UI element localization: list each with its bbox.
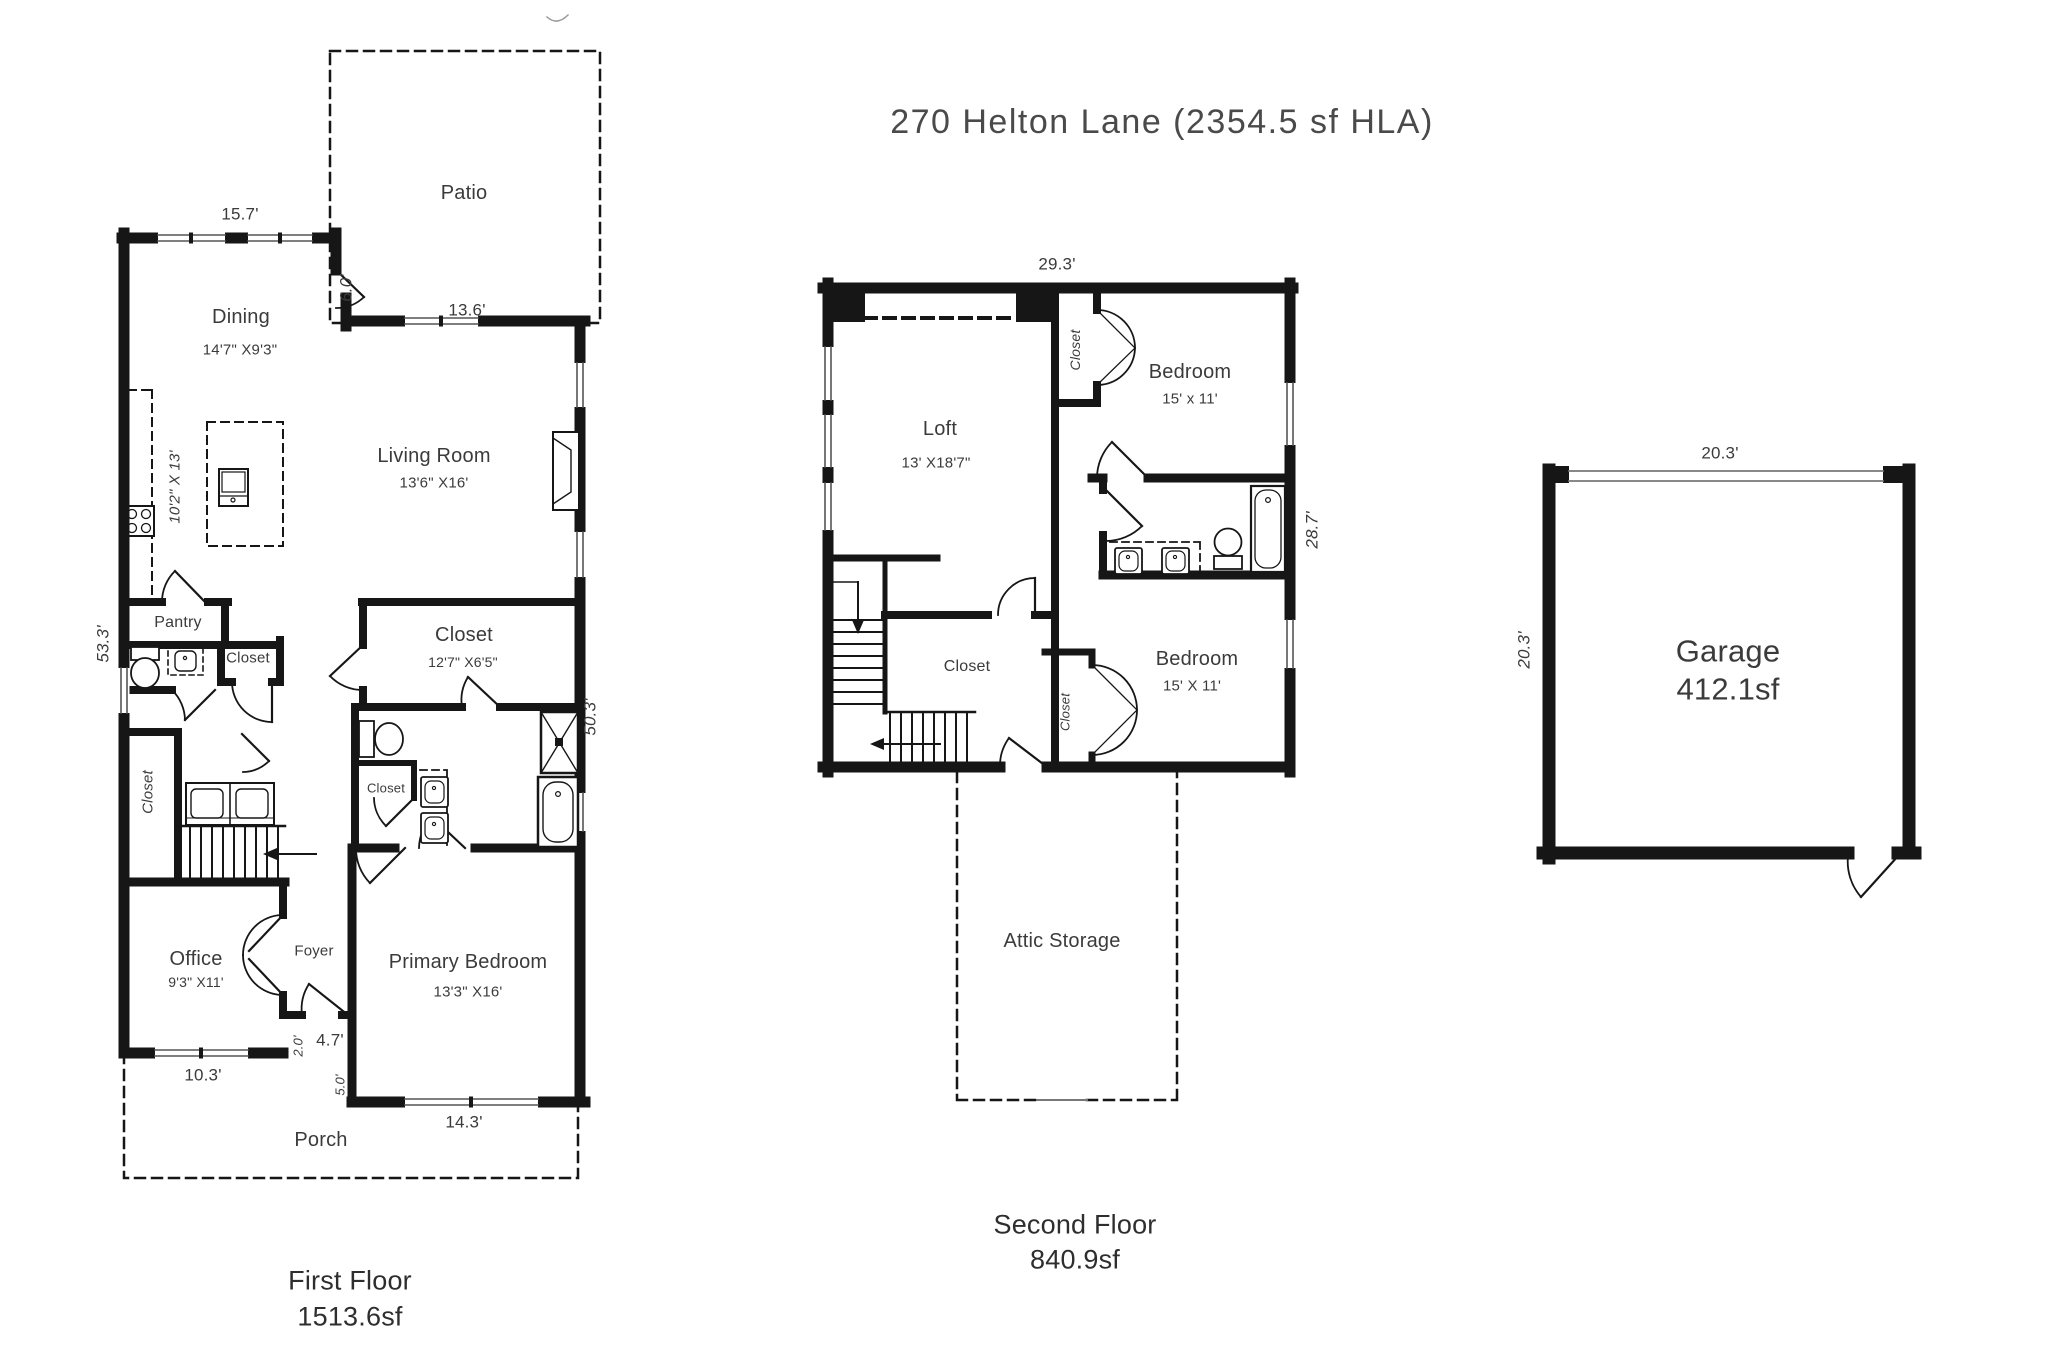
room-label-closet-bath: Closet — [367, 782, 405, 795]
room-size-bedroom1: 15' x 11' — [1162, 392, 1218, 407]
room-label-closet-laundry: Closet — [141, 770, 156, 814]
second-floor-caption: Second Floor — [994, 1212, 1157, 1239]
room-size-living: 13'6" X16' — [400, 476, 469, 491]
dim-label-office-front: 10.3' — [184, 1067, 221, 1084]
room-label-pantry: Pantry — [154, 615, 201, 631]
first-floor-plan — [119, 15, 601, 1178]
room-size-primary-bedroom: 13'3" X16' — [434, 985, 503, 1000]
room-size-dining: 14'7" X9'3" — [203, 343, 277, 358]
room-label-foyer: Foyer — [294, 944, 333, 959]
room-label-attic: Attic Storage — [1003, 931, 1120, 951]
dim-label-garage-top: 20.3' — [1701, 445, 1738, 462]
dim-label-right-side: 50.3' — [582, 698, 599, 735]
dim-label-garage-left: 20.3' — [1516, 631, 1533, 668]
room-label-closet-hall: Closet — [944, 659, 991, 675]
room-size-loft: 13' X18'7" — [902, 456, 971, 471]
room-label-office: Office — [169, 949, 222, 969]
floor-plan-page: 270 Helton Lane (2354.5 sf HLA) Patio 15… — [0, 0, 2048, 1365]
loft-corner-block — [823, 283, 865, 322]
garage-door — [1848, 856, 1898, 897]
room-label-porch: Porch — [294, 1130, 347, 1150]
half-bath-sink-icon — [168, 647, 203, 675]
second-floor-area: 840.9sf — [1030, 1247, 1120, 1274]
second-floor-interior-walls — [885, 288, 1290, 767]
room-size-bedroom2: 15' X 11' — [1163, 679, 1221, 694]
second-bathtub-icon — [1251, 486, 1285, 572]
dim-label-patio-door: 6.0' — [338, 274, 355, 302]
half-bath-toilet-icon — [131, 647, 159, 688]
stray-mark — [547, 15, 568, 21]
room-label-bedroom2: Bedroom — [1156, 649, 1239, 669]
garage-area: 412.1sf — [1676, 674, 1779, 705]
room-label-living: Living Room — [377, 446, 490, 466]
shower-icon — [541, 712, 578, 773]
fireplace-icon — [553, 432, 579, 510]
first-floor-area: 1513.6sf — [297, 1304, 402, 1331]
dim-label-entry-jog: 2.0' — [292, 1035, 305, 1056]
room-size-kitchen: 10'2" X 13' — [168, 450, 183, 523]
plan-title: 270 Helton Lane (2354.5 sf HLA) — [890, 105, 1434, 139]
room-label-garage: Garage — [1676, 636, 1781, 667]
dim-label-second-right: 28.7' — [1304, 511, 1321, 548]
dim-label-entry: 4.7' — [316, 1032, 344, 1049]
room-label-closet-halfbath: Closet — [226, 651, 270, 666]
kitchen-counter — [128, 390, 283, 597]
dim-label-left-side: 53.3' — [95, 625, 112, 662]
garage-front-line — [1569, 471, 1883, 481]
dim-label-porch-depth: 5.0' — [334, 1074, 347, 1095]
first-floor-stairs — [178, 826, 316, 882]
dim-label-bedroom-front: 14.3' — [445, 1114, 482, 1131]
second-bath-toilet-icon — [1214, 529, 1242, 570]
room-label-primary-bedroom: Primary Bedroom — [389, 952, 548, 972]
room-label-closet-top: Closet — [1068, 330, 1082, 371]
room-label-patio: Patio — [441, 183, 488, 203]
dim-label-living-window: 13.6' — [448, 302, 485, 319]
bathtub-icon — [538, 777, 578, 847]
kitchen-sink-icon — [219, 469, 248, 506]
primary-bath-vanity — [420, 770, 448, 845]
second-bath-vanity — [1110, 542, 1200, 574]
room-size-closet-walkin: 12'7" X6'5" — [428, 655, 498, 669]
room-label-bedroom1: Bedroom — [1149, 362, 1232, 382]
dim-label-top: 15.7' — [221, 206, 258, 223]
room-label-closet-walkin: Closet — [435, 625, 493, 645]
second-floor-doors — [998, 310, 1148, 767]
dim-label-second-top: 29.3' — [1038, 256, 1075, 273]
second-floor-plan — [823, 283, 1296, 1100]
washer-dryer-icon — [186, 783, 274, 825]
primary-bath-toilet-icon — [359, 721, 403, 757]
room-label-dining: Dining — [212, 307, 270, 327]
room-label-closet-small: Closet — [1059, 693, 1072, 731]
room-size-office: 9'3" X11' — [168, 975, 223, 989]
first-floor-caption: First Floor — [288, 1268, 412, 1295]
room-label-loft: Loft — [923, 419, 957, 439]
